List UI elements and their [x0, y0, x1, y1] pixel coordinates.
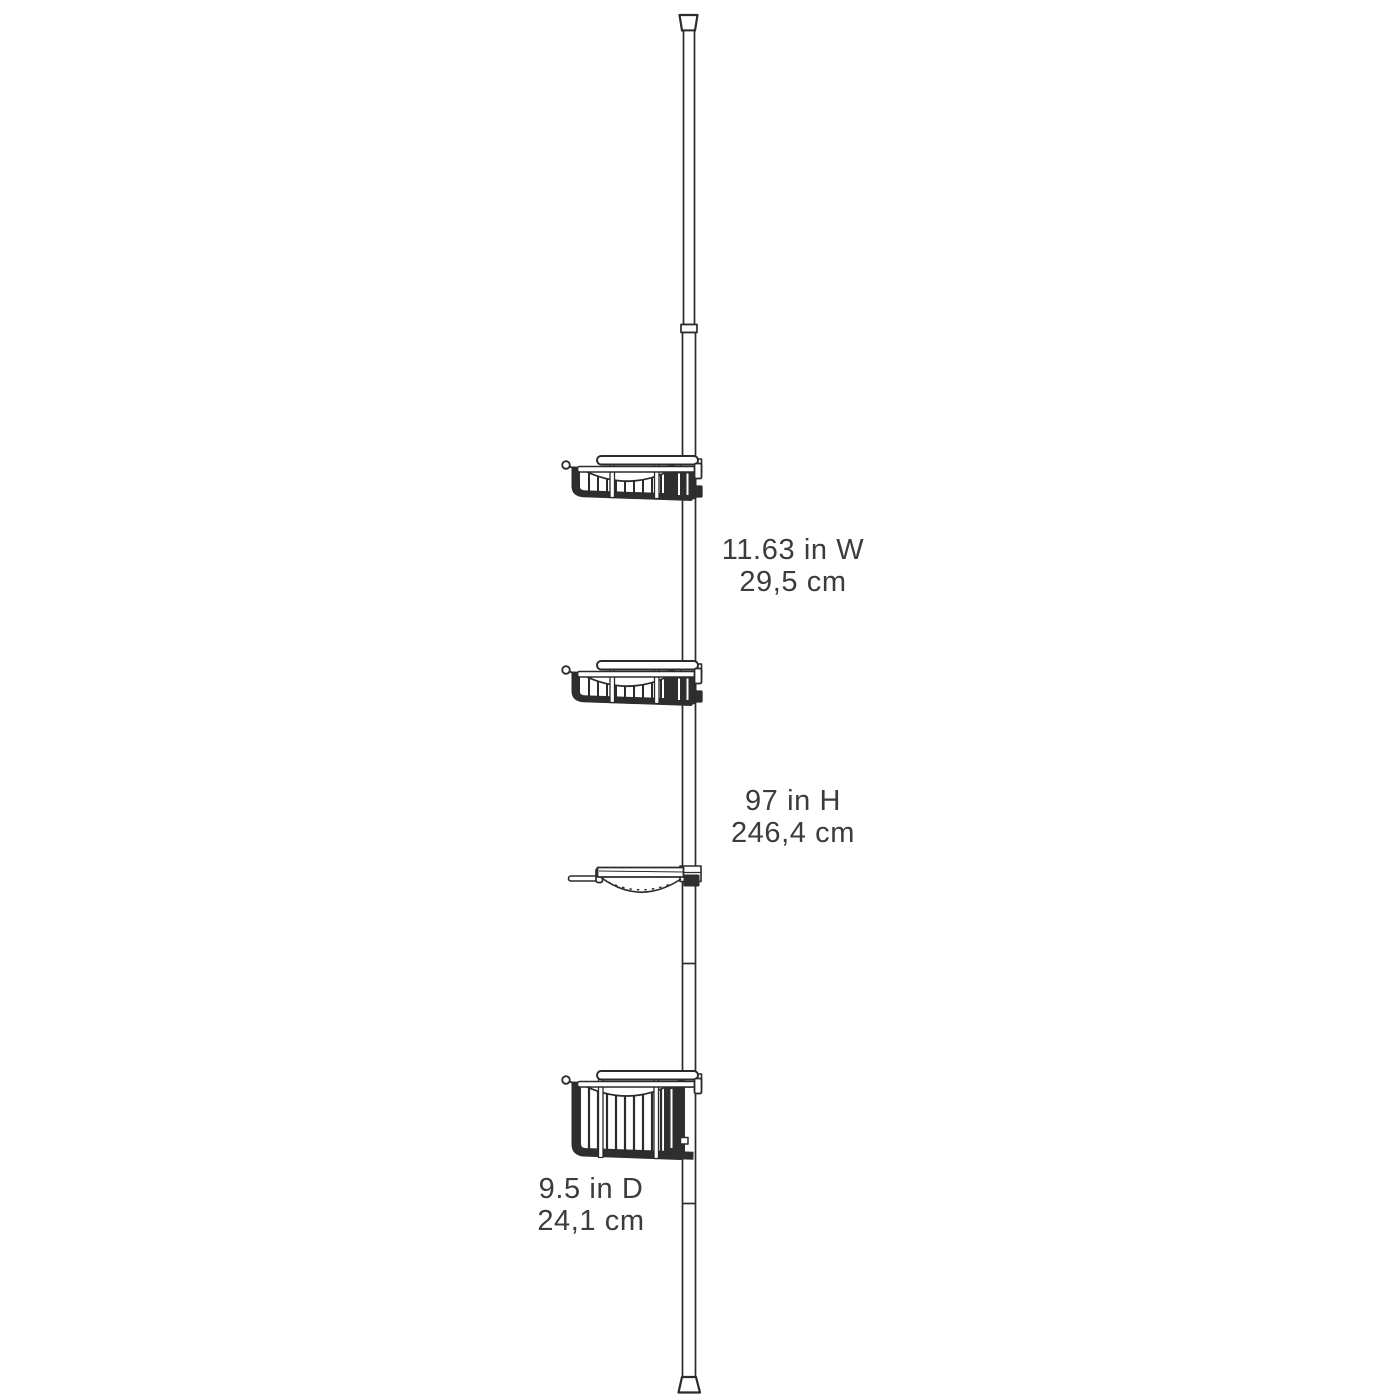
clamp-end-cap — [695, 1079, 702, 1094]
tray-clamp-jaw — [684, 875, 700, 887]
depth-imperial: 9.5 in D — [481, 1174, 701, 1206]
tray-bowl — [601, 878, 681, 893]
bottom-cap — [679, 1377, 701, 1393]
deep-basket-tier-4 — [562, 1071, 701, 1159]
top-cap — [680, 15, 698, 31]
hook-ring — [562, 1076, 570, 1084]
pole-collar — [681, 325, 697, 333]
height-imperial: 97 in H — [683, 786, 903, 818]
product-dimension-diagram: 11.63 in W 29,5 cm 97 in H 246,4 cm 9.5 … — [0, 0, 1400, 1400]
basket-knob — [681, 1138, 689, 1145]
height-metric: 246,4 cm — [683, 818, 903, 850]
width-metric: 29,5 cm — [683, 567, 903, 599]
shallow-basket-tier-2 — [562, 661, 702, 705]
width-imperial: 11.63 in W — [683, 535, 903, 567]
basket-strap — [678, 1076, 685, 1157]
basket-mid-rail — [578, 1082, 699, 1088]
pole-upper-segment — [684, 31, 695, 325]
depth-metric: 24,1 cm — [481, 1206, 701, 1238]
height-dimension-label: 97 in H 246,4 cm — [683, 786, 903, 849]
basket-back-rail — [597, 1071, 698, 1080]
shallow-basket-tier-1 — [562, 456, 702, 500]
soap-dish-tier-3 — [569, 866, 702, 892]
width-dimension-label: 11.63 in W 29,5 cm — [683, 535, 903, 598]
depth-dimension-label: 9.5 in D 24,1 cm — [481, 1174, 701, 1237]
